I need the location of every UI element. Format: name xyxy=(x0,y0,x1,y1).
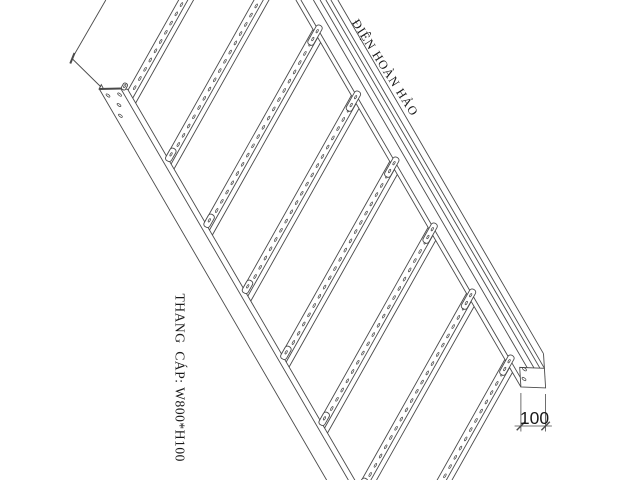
svg-text:THANG CÁP: W800*H100: THANG CÁP: W800*H100 xyxy=(173,294,188,462)
svg-text:100: 100 xyxy=(520,408,549,428)
